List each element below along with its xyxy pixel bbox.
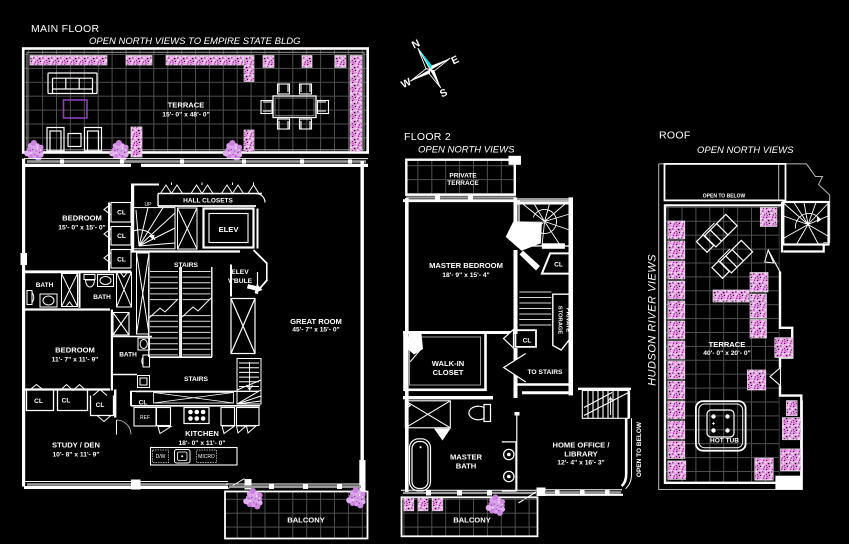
svg-text:CLOSET: CLOSET bbox=[433, 368, 464, 377]
svg-text:BEDROOM: BEDROOM bbox=[55, 346, 95, 355]
svg-text:STAIRS: STAIRS bbox=[184, 376, 209, 383]
svg-text:OPEN NORTH VIEWS: OPEN NORTH VIEWS bbox=[697, 145, 794, 156]
svg-text:BATH: BATH bbox=[36, 282, 54, 289]
svg-text:STUDY / DEN: STUDY / DEN bbox=[52, 441, 100, 450]
svg-text:15'- 0" x 48'- 0": 15'- 0" x 48'- 0" bbox=[162, 112, 209, 119]
svg-text:11'- 7" x 11'- 9": 11'- 7" x 11'- 9" bbox=[52, 357, 99, 364]
svg-text:UP: UP bbox=[145, 202, 153, 208]
svg-text:HOT TUB: HOT TUB bbox=[710, 438, 739, 445]
svg-text:MAIN FLOOR: MAIN FLOOR bbox=[31, 23, 99, 35]
svg-text:REF: REF bbox=[140, 415, 150, 421]
svg-text:18'- 0" x 11'- 0": 18'- 0" x 11'- 0" bbox=[178, 440, 225, 447]
svg-text:TERRACE: TERRACE bbox=[447, 180, 479, 187]
svg-text:10'- 8" x 11'- 9": 10'- 8" x 11'- 9" bbox=[52, 452, 99, 459]
svg-text:PRIVATE: PRIVATE bbox=[449, 173, 477, 180]
svg-text:15'- 0" x 15'- 0": 15'- 0" x 15'- 0" bbox=[58, 225, 105, 232]
svg-text:MICRO: MICRO bbox=[198, 454, 215, 460]
svg-text:WALK-IN: WALK-IN bbox=[432, 359, 464, 368]
svg-text:HUDSON RIVER VIEWS: HUDSON RIVER VIEWS bbox=[647, 254, 659, 386]
svg-text:CL: CL bbox=[117, 233, 126, 240]
svg-text:PRIVATE: PRIVATE bbox=[565, 308, 571, 332]
svg-text:OPEN NORTH VIEWS: OPEN NORTH VIEWS bbox=[418, 145, 515, 156]
svg-text:KITCHEN: KITCHEN bbox=[185, 429, 219, 438]
svg-text:ELEV: ELEV bbox=[231, 269, 249, 276]
svg-text:CL: CL bbox=[62, 398, 71, 405]
svg-text:ROOF: ROOF bbox=[659, 130, 691, 142]
svg-text:GREAT ROOM: GREAT ROOM bbox=[290, 317, 342, 326]
svg-text:CL: CL bbox=[96, 402, 105, 409]
svg-text:BATH: BATH bbox=[456, 462, 477, 471]
svg-text:MASTER BEDROOM: MASTER BEDROOM bbox=[429, 261, 503, 270]
svg-text:LIBRARY: LIBRARY bbox=[564, 450, 597, 459]
svg-text:12'- 4" x 16'- 3": 12'- 4" x 16'- 3" bbox=[557, 460, 604, 467]
svg-text:FLOOR 2: FLOOR 2 bbox=[404, 131, 451, 143]
svg-text:BEDROOM: BEDROOM bbox=[62, 214, 102, 223]
svg-text:D/W: D/W bbox=[156, 454, 166, 460]
svg-text:OPEN TO BELOW: OPEN TO BELOW bbox=[636, 421, 643, 477]
svg-text:TERRACE: TERRACE bbox=[709, 340, 746, 349]
svg-text:40'- 0" x 20'- 0": 40'- 0" x 20'- 0" bbox=[703, 350, 750, 357]
svg-text:18'- 9" x 15'- 4": 18'- 9" x 15'- 4" bbox=[442, 272, 489, 279]
svg-text:TERRACE: TERRACE bbox=[168, 101, 205, 110]
svg-text:BATH: BATH bbox=[119, 352, 137, 359]
svg-text:ELEV: ELEV bbox=[219, 225, 240, 234]
svg-text:CL: CL bbox=[523, 338, 532, 345]
svg-text:STORAGE: STORAGE bbox=[557, 306, 563, 335]
svg-text:OPEN TO BELOW: OPEN TO BELOW bbox=[703, 194, 746, 200]
svg-text:CL: CL bbox=[117, 257, 126, 264]
svg-text:CL: CL bbox=[554, 262, 563, 269]
svg-text:TO STAIRS: TO STAIRS bbox=[527, 369, 563, 376]
svg-text:HALL CLOSETS: HALL CLOSETS bbox=[183, 198, 233, 205]
svg-text:CL: CL bbox=[117, 210, 126, 217]
svg-text:BATH: BATH bbox=[93, 294, 111, 301]
svg-text:CL: CL bbox=[139, 400, 148, 407]
svg-text:BALCONY: BALCONY bbox=[453, 516, 491, 525]
svg-text:MASTER: MASTER bbox=[450, 453, 483, 462]
svg-text:OPEN NORTH VIEWS TO EMPIRE STA: OPEN NORTH VIEWS TO EMPIRE STATE BLDG bbox=[89, 36, 301, 47]
svg-text:45'- 7" x 15'- 0": 45'- 7" x 15'- 0" bbox=[292, 327, 339, 334]
svg-text:HOME OFFICE /: HOME OFFICE / bbox=[553, 441, 611, 450]
svg-text:CL: CL bbox=[34, 398, 43, 405]
svg-text:STAIRS: STAIRS bbox=[174, 262, 199, 269]
svg-text:BALCONY: BALCONY bbox=[287, 516, 325, 525]
